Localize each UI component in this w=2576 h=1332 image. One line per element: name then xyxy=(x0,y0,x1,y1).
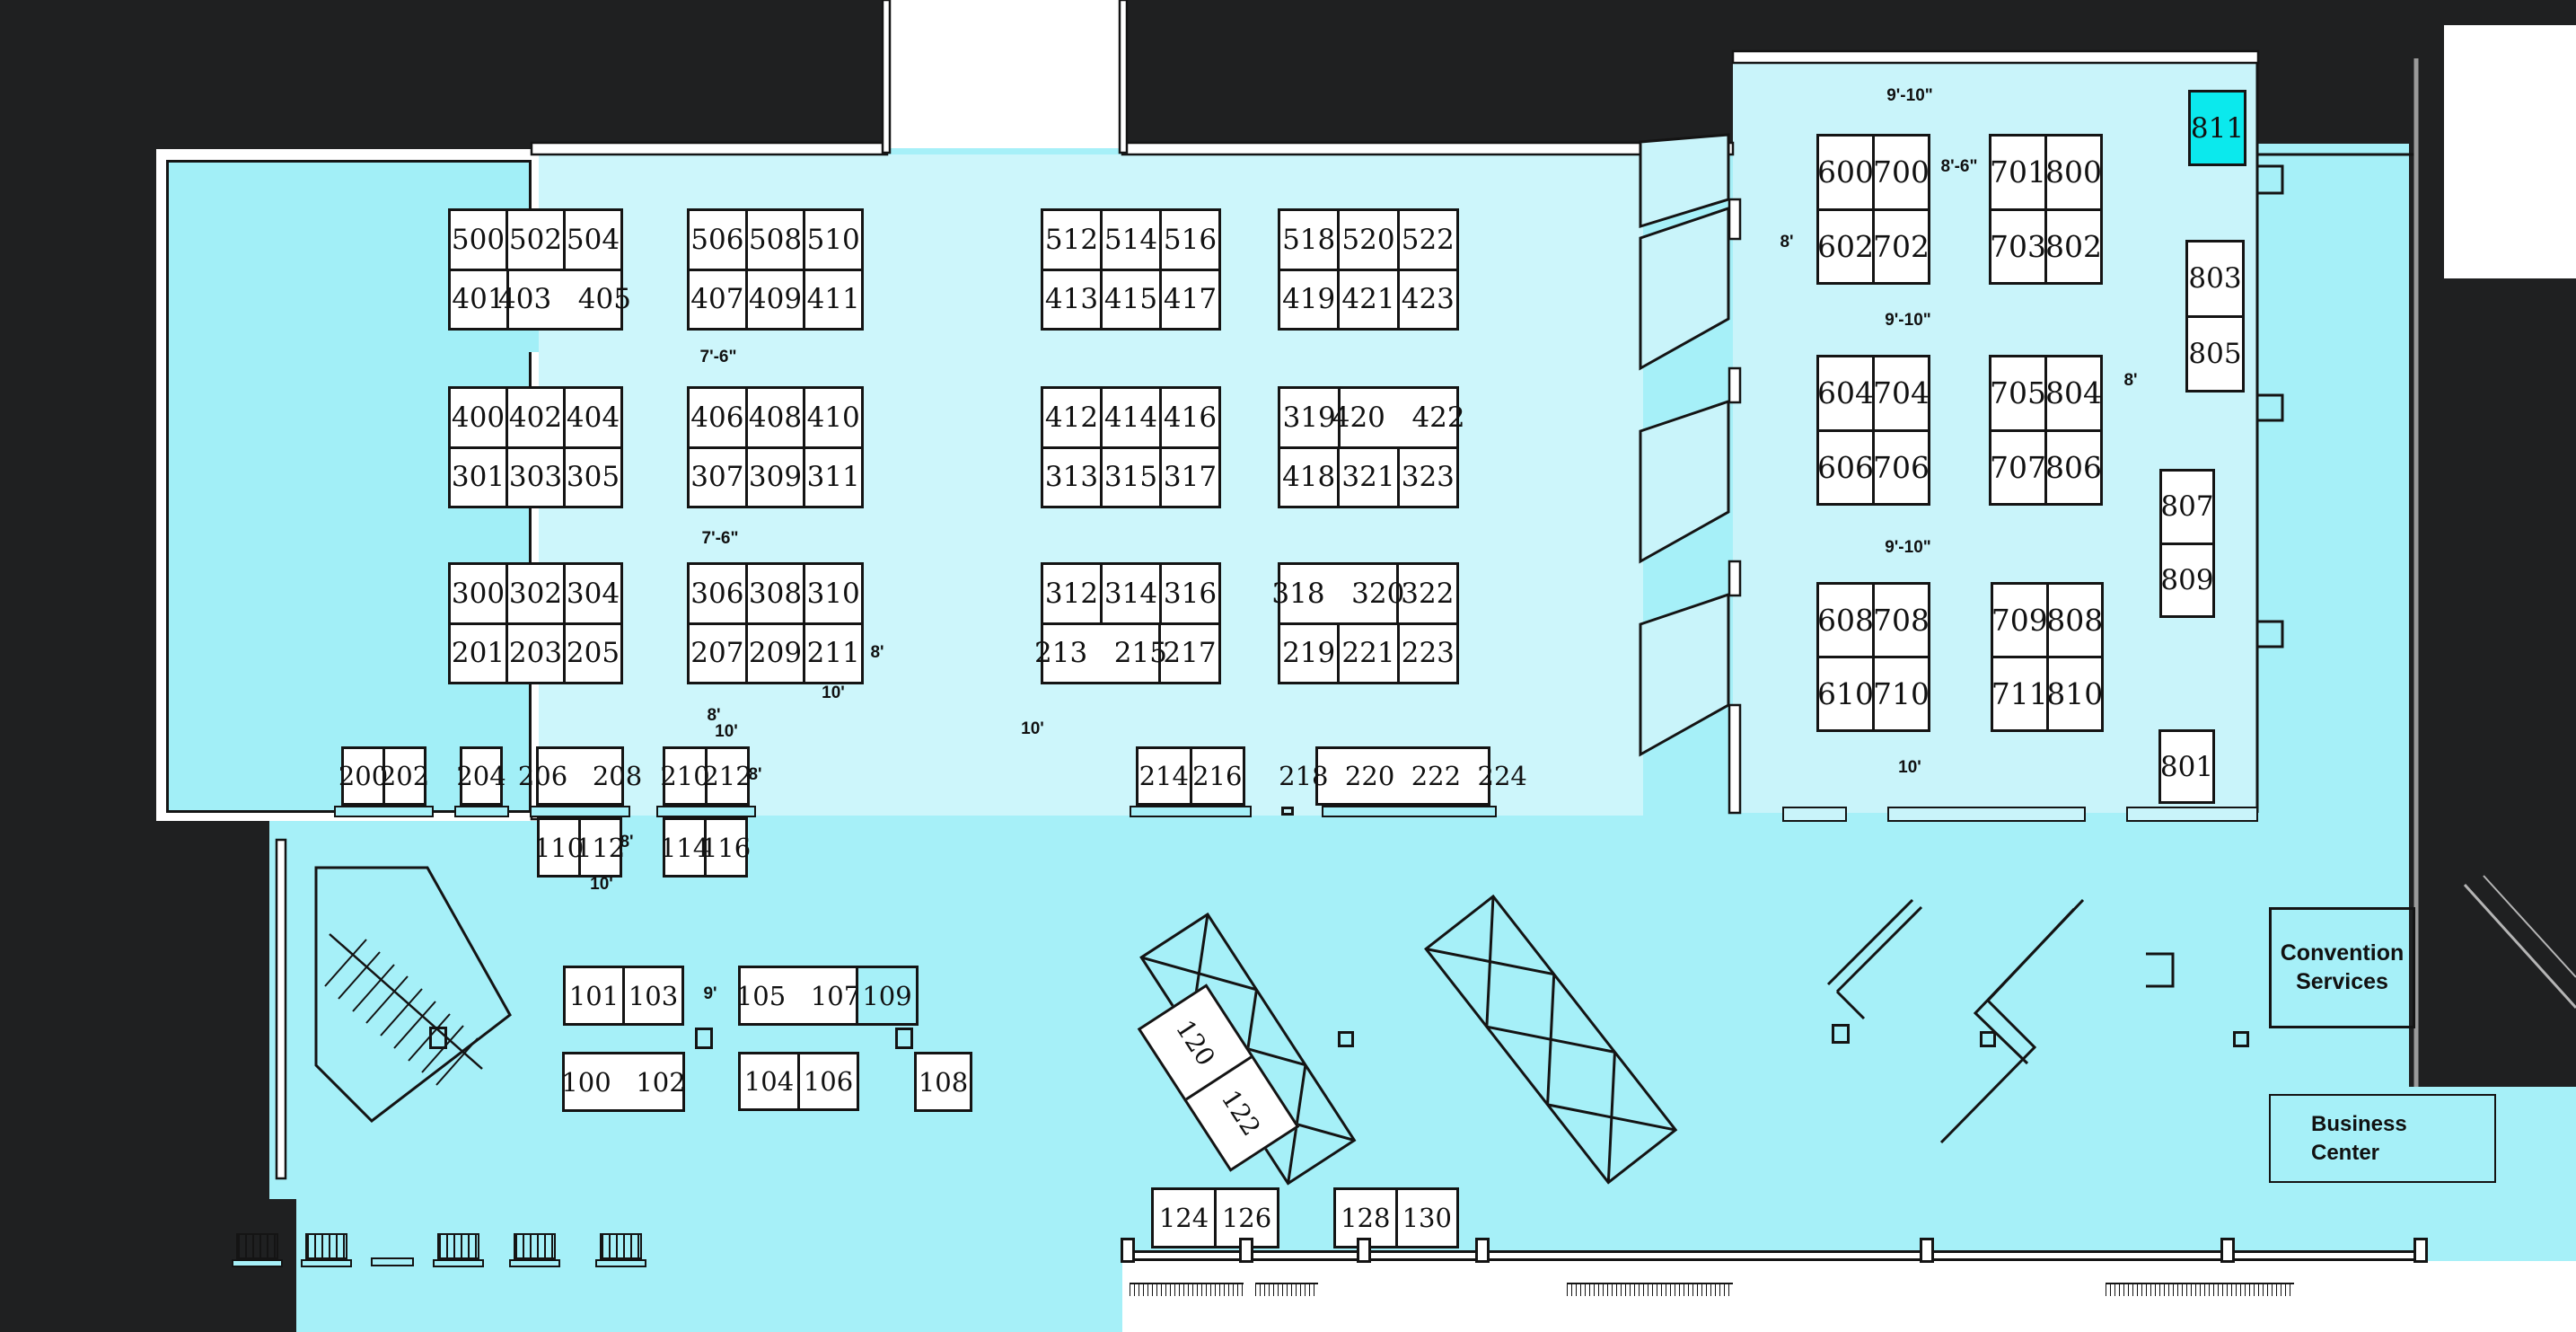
booth-block-s104: 104106 xyxy=(738,1052,859,1111)
booth-308[interactable]: 308 xyxy=(745,565,804,622)
column-pillar xyxy=(2233,1031,2249,1047)
booth-212[interactable]: 212 xyxy=(705,749,747,803)
booth-302[interactable]: 302 xyxy=(506,565,563,622)
booth-block-r604: 604704606706 xyxy=(1816,355,1930,506)
counter-strip xyxy=(656,806,756,817)
booth-514[interactable]: 514 xyxy=(1100,211,1159,269)
counter-strip xyxy=(1130,806,1252,817)
booth-block-r709: 709808711810 xyxy=(1991,582,2104,732)
registration-desk xyxy=(514,1233,556,1259)
booth-210[interactable]: 210 xyxy=(665,749,705,803)
room-label: Business xyxy=(2311,1110,2407,1138)
booth-414[interactable]: 414 xyxy=(1100,389,1159,446)
dimension-label: 8' xyxy=(748,765,761,785)
booth-309[interactable]: 309 xyxy=(745,449,804,507)
booth-219[interactable]: 219 xyxy=(1280,625,1337,683)
booth-512[interactable]: 512 xyxy=(1043,211,1100,269)
booth-block-r705: 705804707806 xyxy=(1989,355,2103,506)
booth-415[interactable]: 415 xyxy=(1100,271,1159,329)
door-leaf xyxy=(1640,401,1728,561)
booth-101[interactable]: 101 xyxy=(566,968,622,1023)
escalator xyxy=(1426,896,1675,1183)
column-pillar xyxy=(895,1028,913,1049)
dimension-label: 7'-6" xyxy=(702,529,739,549)
booth-block-s100: 100 102 xyxy=(562,1052,685,1112)
booth-705[interactable]: 705 xyxy=(1991,357,2044,429)
booth-110[interactable]: 110 xyxy=(540,820,578,875)
counter-strip xyxy=(454,806,509,817)
booth-701[interactable]: 701 xyxy=(1991,137,2044,208)
door-jamb xyxy=(1729,199,1740,239)
wall-segment xyxy=(532,143,887,154)
booth-314[interactable]: 314 xyxy=(1100,565,1159,622)
column-pillar xyxy=(2413,1238,2428,1263)
booth-801[interactable]: 801 xyxy=(2161,732,2212,801)
escalator-shaft-line xyxy=(2465,885,2576,1008)
booth-404[interactable]: 404 xyxy=(563,389,620,446)
escalator-well-walls xyxy=(1828,900,2083,1142)
booth-600[interactable]: 600 xyxy=(1819,137,1872,208)
booth-218[interactable]: 218 220 222 224 xyxy=(1318,749,1488,803)
booth-106[interactable]: 106 xyxy=(797,1054,857,1108)
booth-105[interactable]: 105 107 xyxy=(741,968,856,1023)
booth-block-s200: 200202 xyxy=(341,746,426,806)
booth-416[interactable]: 416 xyxy=(1159,389,1218,446)
booth-block-r803: 803805 xyxy=(2185,240,2245,393)
booth-700[interactable]: 700 xyxy=(1872,137,1928,208)
booth-317[interactable]: 317 xyxy=(1159,449,1218,507)
booth-406[interactable]: 406 xyxy=(690,389,745,446)
booth-block-b506: 506508510407409411 xyxy=(687,208,864,331)
column-pillar xyxy=(1832,1024,1850,1044)
booth-410[interactable]: 410 xyxy=(803,389,861,446)
dimension-label: 8' xyxy=(870,643,884,663)
column-pillar xyxy=(1475,1238,1490,1263)
wall-notch xyxy=(2257,622,2282,647)
door-jamb xyxy=(1729,705,1740,813)
window-mullions xyxy=(1255,1283,1318,1296)
booth-702[interactable]: 702 xyxy=(1872,211,1928,283)
booth-block-r608: 608708610710 xyxy=(1816,582,1930,732)
column-pillar xyxy=(1281,807,1294,816)
booth-124[interactable]: 124 xyxy=(1154,1190,1214,1246)
room-label: Services xyxy=(2296,968,2388,996)
desk-base xyxy=(301,1259,352,1267)
booth-407[interactable]: 407 xyxy=(690,271,745,329)
dimension-label: 10' xyxy=(822,684,845,703)
booth-203[interactable]: 203 xyxy=(506,625,563,683)
booth-217[interactable]: 217 xyxy=(1158,625,1218,683)
column-pillar xyxy=(1980,1031,1996,1047)
dimension-label: 9'-10" xyxy=(1885,311,1931,331)
convention-services-room[interactable]: Convention Services xyxy=(2269,907,2415,1028)
booth-223[interactable]: 223 xyxy=(1397,625,1456,683)
dimension-label: 10' xyxy=(715,722,738,742)
column-pillar xyxy=(1357,1238,1371,1263)
column-pillar xyxy=(1338,1031,1354,1047)
room-label: Convention xyxy=(2281,939,2405,967)
booth-block-r701: 701800703802 xyxy=(1989,134,2103,285)
registration-desk xyxy=(305,1233,347,1259)
door-leaf xyxy=(1640,595,1728,754)
vestibule-wall xyxy=(883,0,890,153)
booth-606[interactable]: 606 xyxy=(1819,432,1872,504)
booth-block-b500: 500502504401403 405 xyxy=(448,208,623,331)
staircase xyxy=(316,868,510,1121)
booth-block-s114: 114116 xyxy=(663,817,748,878)
booth-block-b518: 518520522419421423 xyxy=(1278,208,1459,331)
booth-303[interactable]: 303 xyxy=(506,449,563,507)
booth-805[interactable]: 805 xyxy=(2188,318,2242,391)
booth-500[interactable]: 500 xyxy=(451,211,506,269)
booth-112[interactable]: 112 xyxy=(578,820,620,875)
booth-809[interactable]: 809 xyxy=(2162,545,2212,616)
booth-319[interactable]: 319 xyxy=(1280,389,1338,446)
booth-412[interactable]: 412 xyxy=(1043,389,1100,446)
booth-423[interactable]: 423 xyxy=(1397,271,1456,329)
booth-421[interactable]: 421 xyxy=(1337,271,1396,329)
booth-323[interactable]: 323 xyxy=(1397,449,1456,507)
booth-711[interactable]: 711 xyxy=(1993,658,2046,729)
booth-510[interactable]: 510 xyxy=(803,211,861,269)
booth-114[interactable]: 114 xyxy=(665,820,704,875)
booth-811[interactable]: 811 xyxy=(2191,93,2244,163)
booth-313[interactable]: 313 xyxy=(1043,449,1100,507)
booth-block-s218: 218 220 222 224 xyxy=(1315,746,1490,806)
booth-409[interactable]: 409 xyxy=(745,271,804,329)
booth-block-s210: 210212 xyxy=(663,746,750,806)
booth-block-s101: 101103 xyxy=(563,966,684,1026)
booth-301[interactable]: 301 xyxy=(451,449,506,507)
booth-block-b400: 400402404301303305 xyxy=(448,386,623,508)
window-mullions xyxy=(1567,1283,1733,1296)
booth-block-s214: 214216 xyxy=(1136,746,1245,806)
vestibule-wall xyxy=(1120,0,1127,153)
booth-block-s204: 204 xyxy=(460,746,503,806)
booth-419[interactable]: 419 xyxy=(1280,271,1337,329)
booth-block-b319: 319420 422418321323 xyxy=(1278,386,1459,508)
counter-strip xyxy=(1782,807,1847,822)
room-label: Center xyxy=(2311,1139,2379,1167)
dimension-label: 8'-6" xyxy=(1941,157,1978,177)
wall-bracket xyxy=(2146,954,2173,986)
booth-608[interactable]: 608 xyxy=(1819,585,1872,656)
booth-610[interactable]: 610 xyxy=(1819,658,1872,729)
booth-710[interactable]: 710 xyxy=(1872,658,1928,729)
booth-417[interactable]: 417 xyxy=(1159,271,1218,329)
booth-block-r801: 801 xyxy=(2158,729,2215,804)
booth-307[interactable]: 307 xyxy=(690,449,745,507)
booth-216[interactable]: 216 xyxy=(1190,749,1244,803)
booth-802[interactable]: 802 xyxy=(2044,211,2100,283)
column-pillar xyxy=(695,1028,713,1049)
desk-base xyxy=(232,1259,283,1267)
dimension-label: 9'-10" xyxy=(1885,538,1931,558)
booth-310[interactable]: 310 xyxy=(803,565,861,622)
booth-block-s105: 105 107109 xyxy=(738,966,919,1026)
dimension-label: 8' xyxy=(620,833,633,852)
booth-block-b306: 306308310207209211 xyxy=(687,562,864,684)
booth-602[interactable]: 602 xyxy=(1819,211,1872,283)
booth-709[interactable]: 709 xyxy=(1993,585,2046,656)
counter-strip xyxy=(530,806,630,817)
booth-418[interactable]: 418 xyxy=(1280,449,1337,507)
door-jamb xyxy=(1729,561,1740,595)
dimension-label: 7'-6" xyxy=(700,348,737,367)
booth-block-r811: 811 xyxy=(2188,90,2246,166)
booth-806[interactable]: 806 xyxy=(2044,432,2100,504)
booth-810[interactable]: 810 xyxy=(2046,658,2102,729)
booth-block-s206: 206 208 xyxy=(536,746,624,806)
door-leaf xyxy=(1640,208,1728,368)
dimension-label: 10' xyxy=(590,875,613,895)
corridor-wall xyxy=(277,840,286,1178)
wall-notch xyxy=(2257,166,2282,193)
column-pillar xyxy=(429,1027,447,1049)
booth-318[interactable]: 318 320 xyxy=(1280,565,1396,622)
booth-206[interactable]: 206 208 xyxy=(539,749,621,803)
booth-214[interactable]: 214 xyxy=(1139,749,1190,803)
booth-518[interactable]: 518 xyxy=(1280,211,1337,269)
dimension-label: 10' xyxy=(1898,758,1921,778)
booth-block-b406: 406408410307309311 xyxy=(687,386,864,508)
booth-321[interactable]: 321 xyxy=(1337,449,1396,507)
booth-807[interactable]: 807 xyxy=(2162,472,2212,543)
booth-202[interactable]: 202 xyxy=(382,749,424,803)
booth-305[interactable]: 305 xyxy=(563,449,620,507)
counter-strip xyxy=(2126,807,2258,822)
column-pillar xyxy=(1121,1238,1135,1263)
booth-408[interactable]: 408 xyxy=(745,389,804,446)
booth-703[interactable]: 703 xyxy=(1991,211,2044,283)
booth-304[interactable]: 304 xyxy=(563,565,620,622)
booth-322[interactable]: 322 xyxy=(1396,565,1456,622)
door-jamb xyxy=(1729,368,1740,402)
registration-desk xyxy=(236,1233,278,1259)
booth-block-b512: 512514516413415417 xyxy=(1041,208,1221,331)
booth-506[interactable]: 506 xyxy=(690,211,745,269)
booth-420[interactable]: 420 422 xyxy=(1338,389,1456,446)
booth-block-s128: 128130 xyxy=(1333,1187,1459,1248)
booth-block-b412: 412414416313315317 xyxy=(1041,386,1221,508)
counter-strip xyxy=(1887,807,2086,822)
booth-109[interactable]: 109 xyxy=(856,968,916,1023)
dimension-label: 8' xyxy=(2123,371,2137,391)
booth-103[interactable]: 103 xyxy=(622,968,681,1023)
booth-413[interactable]: 413 xyxy=(1043,271,1100,329)
registration-desk xyxy=(600,1233,642,1259)
counter-strip xyxy=(371,1257,414,1266)
booth-706[interactable]: 706 xyxy=(1872,432,1928,504)
column-pillar xyxy=(1239,1238,1253,1263)
booth-block-b312: 312314316213 215217 xyxy=(1041,562,1221,684)
booth-207[interactable]: 207 xyxy=(690,625,745,683)
booth-block-s108: 108 xyxy=(914,1052,972,1112)
booth-213[interactable]: 213 215 xyxy=(1043,625,1158,683)
escalator-shaft-line xyxy=(2484,876,2576,977)
column-pillar xyxy=(2220,1238,2235,1263)
booth-300[interactable]: 300 xyxy=(451,565,506,622)
booth-209[interactable]: 209 xyxy=(745,625,804,683)
booth-400[interactable]: 400 xyxy=(451,389,506,446)
desk-base xyxy=(509,1259,560,1267)
booth-205[interactable]: 205 xyxy=(563,625,620,683)
booth-316[interactable]: 316 xyxy=(1159,565,1218,622)
booth-108[interactable]: 108 xyxy=(917,1054,970,1109)
booth-604[interactable]: 604 xyxy=(1819,357,1872,429)
booth-520[interactable]: 520 xyxy=(1337,211,1396,269)
booth-411[interactable]: 411 xyxy=(803,271,861,329)
booth-508[interactable]: 508 xyxy=(745,211,804,269)
booth-504[interactable]: 504 xyxy=(563,211,620,269)
booth-100[interactable]: 100 102 xyxy=(565,1054,682,1109)
booth-522[interactable]: 522 xyxy=(1397,211,1456,269)
booth-708[interactable]: 708 xyxy=(1872,585,1928,656)
wall-segment xyxy=(1733,51,2258,63)
floor-plan: 500502504401403 405506508510407409411512… xyxy=(0,0,2576,1332)
window-mullions xyxy=(2106,1283,2294,1296)
wall-notch xyxy=(2257,395,2282,420)
desk-base xyxy=(433,1259,484,1267)
booth-block-b318: 318 320322219221223 xyxy=(1278,562,1459,684)
booth-204[interactable]: 204 xyxy=(462,749,500,803)
booth-104[interactable]: 104 xyxy=(741,1054,797,1108)
booth-516[interactable]: 516 xyxy=(1159,211,1218,269)
booth-211[interactable]: 211 xyxy=(803,625,861,683)
counter-strip xyxy=(334,806,434,817)
booth-315[interactable]: 315 xyxy=(1100,449,1159,507)
registration-desk xyxy=(437,1233,479,1259)
dimension-label: 9'-10" xyxy=(1886,86,1933,106)
booth-808[interactable]: 808 xyxy=(2046,585,2102,656)
booth-402[interactable]: 402 xyxy=(506,389,563,446)
booth-116[interactable]: 116 xyxy=(704,820,745,875)
booth-200[interactable]: 200 xyxy=(344,749,382,803)
booth-block-s124: 124126 xyxy=(1151,1187,1279,1248)
booth-221[interactable]: 221 xyxy=(1337,625,1396,683)
booth-403[interactable]: 403 405 xyxy=(506,271,620,329)
booth-block-b300: 300302304201203205 xyxy=(448,562,623,684)
booth-block-s110: 110112 xyxy=(537,817,622,878)
dimension-label: 8' xyxy=(1780,233,1793,252)
booth-707[interactable]: 707 xyxy=(1991,432,2044,504)
booth-306[interactable]: 306 xyxy=(690,565,745,622)
dimension-label: 9' xyxy=(703,984,717,1004)
counter-strip xyxy=(1322,806,1497,817)
business-center-room[interactable]: Business Center xyxy=(2269,1094,2496,1183)
booth-803[interactable]: 803 xyxy=(2188,243,2242,315)
booth-130[interactable]: 130 xyxy=(1395,1190,1457,1246)
column-pillar xyxy=(1920,1238,1934,1263)
booth-block-r600: 600700602702 xyxy=(1816,134,1930,285)
booth-704[interactable]: 704 xyxy=(1872,357,1928,429)
dimension-label: 10' xyxy=(1021,719,1044,739)
desk-base xyxy=(595,1259,646,1267)
booth-311[interactable]: 311 xyxy=(803,449,861,507)
booth-502[interactable]: 502 xyxy=(506,211,563,269)
booth-800[interactable]: 800 xyxy=(2044,137,2100,208)
booth-block-r807: 807809 xyxy=(2159,469,2215,618)
booth-804[interactable]: 804 xyxy=(2044,357,2100,429)
booth-201[interactable]: 201 xyxy=(451,625,506,683)
window-mullions xyxy=(1130,1283,1244,1296)
booth-312[interactable]: 312 xyxy=(1043,565,1100,622)
